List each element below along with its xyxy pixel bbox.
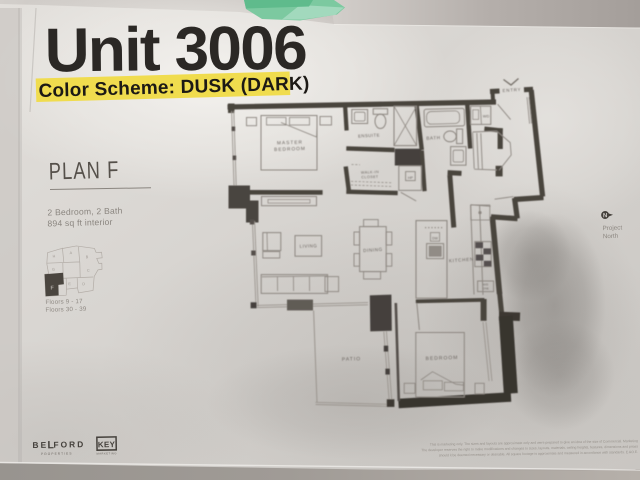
svg-text:H: H (53, 254, 56, 258)
svg-text:PROPERTIES: PROPERTIES (41, 452, 73, 457)
svg-text:Floors 30 - 39: Floors 30 - 39 (45, 306, 87, 314)
svg-text:North: North (603, 233, 619, 240)
svg-text:D: D (82, 282, 85, 286)
svg-text:PATIO: PATIO (342, 356, 361, 363)
svg-text:Project: Project (602, 225, 622, 233)
svg-text:CLOSET: CLOSET (361, 175, 379, 180)
svg-text:PLAN F: PLAN F (48, 156, 119, 185)
svg-text:2 Bedroom, 2 Bath: 2 Bedroom, 2 Bath (47, 206, 122, 218)
svg-text:ONE: ONE (483, 287, 489, 291)
svg-text:BEDROOM: BEDROOM (274, 146, 306, 153)
svg-text:MASTER: MASTER (277, 140, 303, 147)
svg-text:FORD: FORD (53, 439, 85, 450)
svg-text:KEY: KEY (98, 440, 116, 449)
svg-text:Floors 9 - 17: Floors 9 - 17 (45, 298, 83, 306)
svg-text:HP: HP (408, 176, 414, 180)
svg-text:894 sq ft interior: 894 sq ft interior (47, 217, 112, 229)
svg-text:BEDROOM: BEDROOM (425, 355, 458, 362)
svg-text:N: N (603, 213, 607, 219)
svg-text:W/D: W/D (483, 115, 490, 119)
svg-text:LIVING: LIVING (300, 243, 318, 249)
svg-text:DW: DW (432, 236, 438, 240)
svg-text:G: G (52, 267, 55, 271)
svg-text:BE: BE (32, 440, 48, 450)
svg-text:MARKETING: MARKETING (96, 451, 117, 455)
svg-text:C: C (87, 269, 90, 273)
svg-text:BATH: BATH (426, 135, 441, 141)
